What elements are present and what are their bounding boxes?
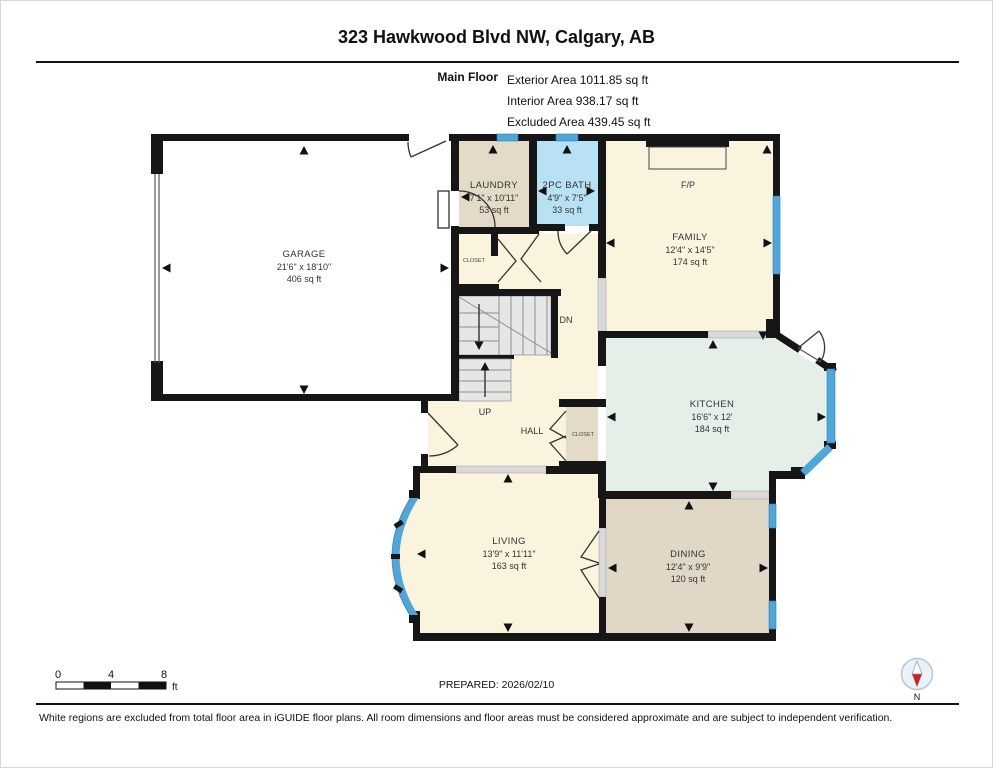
laundry-closet-label: CLOSET — [463, 258, 485, 264]
stairs-down-label: DN — [560, 315, 573, 325]
garage-man-door-opening — [409, 134, 449, 141]
room-area: 53 sq ft — [470, 205, 519, 216]
hall-label: HALL — [521, 426, 544, 436]
family-kitchen-sill — [708, 331, 766, 338]
room-dims: 13'9" x 11'11" — [482, 549, 535, 560]
hall-living-sill — [456, 466, 546, 473]
north-label: N — [914, 692, 921, 702]
garage-door — [155, 174, 159, 363]
room-label-bath: 2PC BATH 4'9" x 7'5" 33 sq ft — [543, 180, 592, 216]
room-name: LAUNDRY — [470, 180, 519, 192]
room-label-garage: GARAGE 21'6" x 18'10" 406 sq ft — [277, 249, 331, 285]
fireplace-wall — [646, 134, 729, 147]
room-label-laundry: LAUNDRY 7'1" x 10'11" 53 sq ft — [470, 180, 519, 216]
kitchen-patio-door-leaf — [798, 331, 819, 348]
kitchen-dining-sill — [731, 491, 769, 499]
fireplace-box — [649, 147, 726, 169]
room-label-dining: DINING 12'4" x 9'9" 120 sq ft — [666, 549, 710, 585]
room-name: KITCHEN — [690, 399, 735, 411]
room-area: 163 sq ft — [482, 561, 535, 572]
laundry-door-leaf — [438, 191, 449, 228]
room-dims: 7'1" x 10'11" — [470, 193, 519, 204]
dining-window-2 — [769, 601, 776, 629]
prepared-date: PREPARED: 2026/02/10 — [1, 679, 992, 691]
room-dims: 12'4" x 9'9" — [666, 562, 710, 573]
room-dims: 21'6" x 18'10" — [277, 262, 331, 273]
dining-window-1 — [769, 504, 776, 528]
kitchen-bay-window — [827, 369, 835, 443]
room-name: DINING — [666, 549, 710, 561]
room-name: FAMILY — [665, 232, 714, 244]
floorplan-drawing: 0 4 8 ft N — [1, 1, 993, 768]
living-dining-sill — [599, 528, 606, 597]
room-label-kitchen: KITCHEN 16'6" x 12' 184 sq ft — [690, 399, 735, 435]
room-dims: 12'4" x 14'5" — [665, 245, 714, 256]
room-label-living: LIVING 13'9" x 11'11" 163 sq ft — [482, 536, 535, 572]
room-label-family: FAMILY 12'4" x 14'5" 174 sq ft — [665, 232, 714, 268]
south-exterior-wall — [413, 633, 776, 641]
fireplace-label: F/P — [681, 180, 695, 190]
laundry-window — [497, 134, 518, 141]
room-area: 184 sq ft — [690, 424, 735, 435]
room-area: 33 sq ft — [543, 205, 592, 216]
room-area: 406 sq ft — [277, 274, 331, 285]
hall-closet-label: CLOSET — [572, 432, 594, 438]
family-window — [773, 196, 780, 274]
family-opening-sill — [598, 278, 606, 331]
garage-east-wall — [451, 226, 459, 401]
garage-south-wall — [153, 394, 459, 401]
room-area: 174 sq ft — [665, 257, 714, 268]
room-name: GARAGE — [277, 249, 331, 261]
floorplan-page: 323 Hawkwood Blvd NW, Calgary, AB Main F… — [0, 0, 993, 768]
bath-window — [556, 134, 578, 141]
room-dims: 4'9" x 7'5" — [543, 193, 592, 204]
room-area: 120 sq ft — [666, 574, 710, 585]
room-dims: 16'6" x 12' — [690, 412, 735, 423]
disclaimer-text: White regions are excluded from total fl… — [39, 712, 972, 724]
room-name: LIVING — [482, 536, 535, 548]
kitchen-patio-door-swing — [819, 331, 825, 361]
footer-rule — [36, 703, 959, 705]
room-name: 2PC BATH — [543, 180, 592, 192]
stairs-up-label: UP — [479, 407, 492, 417]
